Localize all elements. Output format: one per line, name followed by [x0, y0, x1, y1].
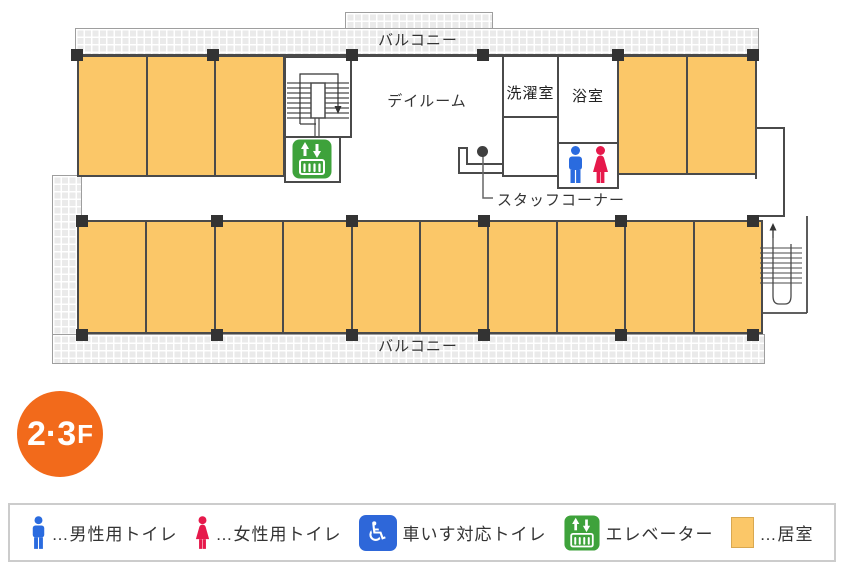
pillar [346, 49, 358, 61]
living-rooms-bottom [77, 220, 763, 334]
room-living [556, 220, 626, 334]
female-toilet-icon [592, 146, 609, 184]
pillar [478, 329, 490, 341]
legend-item-living-room: …居室 [731, 517, 814, 548]
legend-item-male-toilet: …男性用トイレ [31, 516, 178, 550]
pillar [76, 215, 88, 227]
passage-extension-wall [755, 127, 757, 179]
floor-plan-page: バルコニー バルコニー [0, 0, 845, 576]
room-living [77, 220, 147, 334]
legend-label: …女性用トイレ [216, 520, 342, 545]
utility-room [502, 116, 559, 177]
pillar [346, 215, 358, 227]
living-rooms-top-right [617, 55, 757, 175]
room-living [282, 220, 352, 334]
elevator-icon [292, 139, 332, 179]
male-toilet-icon [567, 146, 584, 184]
elevator-icon [564, 515, 600, 551]
elevator-shaft [284, 136, 341, 183]
room-living [487, 220, 557, 334]
legend-label: 車いす対応トイレ [403, 520, 547, 545]
legend-item-wheelchair-toilet: ♿ 車いす対応トイレ [359, 515, 547, 551]
room-living [214, 55, 285, 177]
room-living [617, 55, 688, 175]
stair-up-arrow [770, 223, 777, 231]
room-living [351, 220, 421, 334]
bath-room: 浴室 [557, 55, 619, 144]
pillar [615, 329, 627, 341]
stairs-external [756, 214, 812, 316]
wheelchair-toilet-icon: ♿ [359, 515, 397, 551]
living-room-swatch [731, 517, 754, 548]
floor-badge-suffix: F [77, 419, 93, 450]
legend-label: …男性用トイレ [52, 520, 178, 545]
room-living [419, 220, 489, 334]
dayroom-label: デイルーム [352, 90, 502, 111]
legend-item-female-toilet: …女性用トイレ [195, 516, 342, 550]
pillar [211, 329, 223, 341]
room-living [624, 220, 694, 334]
pillar [615, 215, 627, 227]
living-rooms-top-left [77, 55, 285, 177]
wheelchair-glyph: ♿ [365, 519, 389, 546]
male-toilet-icon [31, 516, 46, 550]
staff-chair-dot [477, 146, 488, 157]
legend-label: …居室 [760, 520, 814, 545]
stairwell-internal [284, 56, 352, 138]
pillar [478, 215, 490, 227]
laundry-room: 洗濯室 [502, 55, 559, 118]
pillar [747, 329, 759, 341]
pillar [346, 329, 358, 341]
floor-badge: 2·3 F [17, 391, 103, 477]
pillar [211, 215, 223, 227]
room-living [214, 220, 284, 334]
bath-label: 浴室 [559, 57, 617, 106]
toilet-room [557, 142, 619, 189]
room-living [77, 55, 148, 177]
staff-corner-label: スタッフコーナー [497, 189, 625, 210]
room-living [686, 55, 757, 175]
floor-badge-number: 2·3 [27, 415, 76, 454]
room-living [145, 220, 215, 334]
legend-item-elevator: エレベーター [564, 515, 714, 551]
balcony-top-label: バルコニー [345, 31, 491, 51]
pillar [71, 49, 83, 61]
balcony-bottom-label: バルコニー [345, 337, 491, 357]
pillar [612, 49, 624, 61]
pillar [747, 215, 759, 227]
laundry-label: 洗濯室 [504, 57, 557, 103]
room-living [693, 220, 763, 334]
pillar [76, 329, 88, 341]
pillar [207, 49, 219, 61]
female-toilet-icon [195, 516, 210, 550]
legend-label: エレベーター [606, 520, 714, 545]
pillar [747, 49, 759, 61]
room-living [146, 55, 217, 177]
legend: …男性用トイレ …女性用トイレ ♿ 車いす対応トイレ [8, 503, 836, 562]
pillar [477, 49, 489, 61]
passage-extension [755, 127, 785, 217]
